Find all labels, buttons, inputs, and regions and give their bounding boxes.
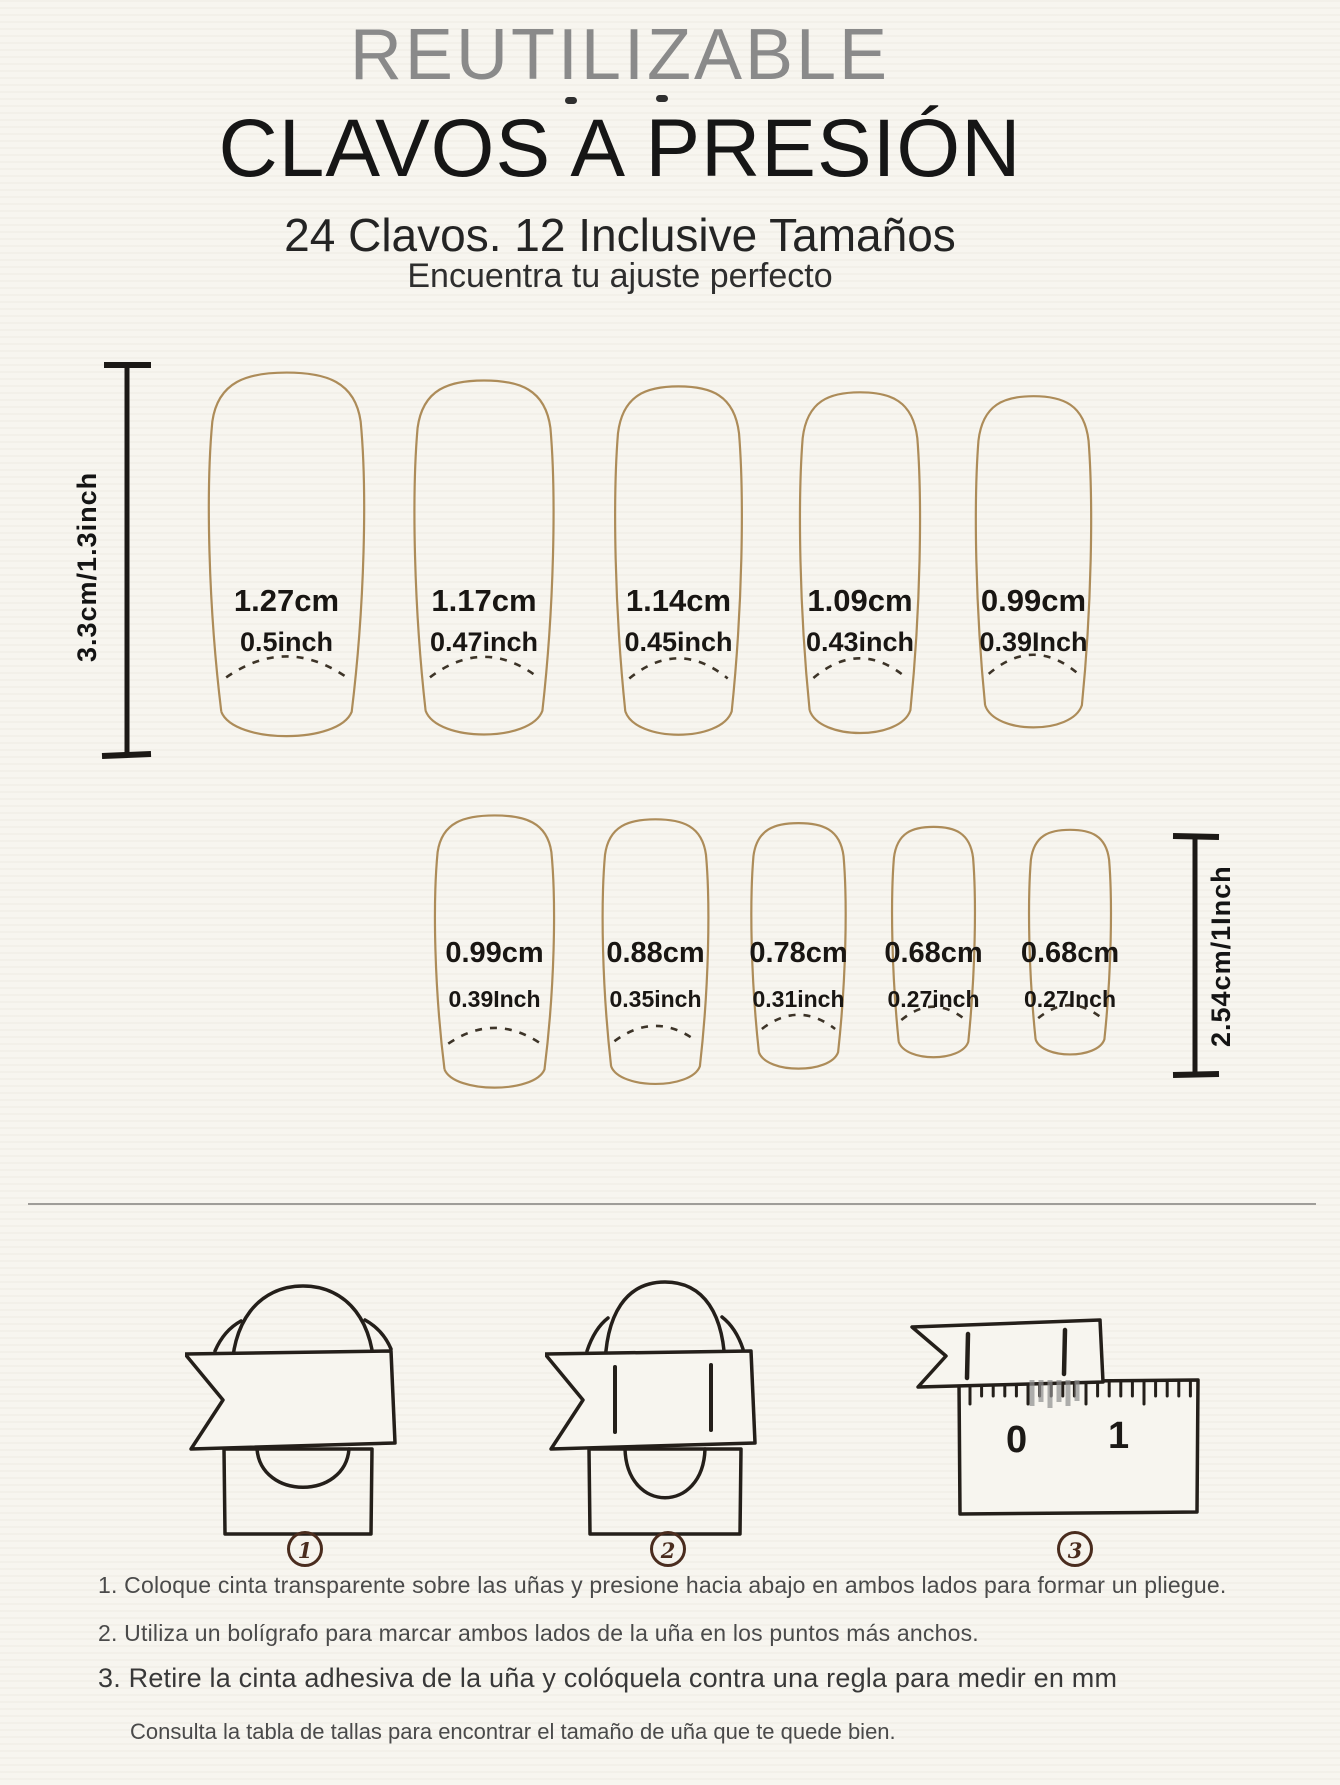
section-divider xyxy=(28,1203,1316,1205)
nail-outline xyxy=(205,368,368,750)
nail-inch-label: 0.45inch xyxy=(599,627,759,658)
ruler-zero-label: 0 xyxy=(1006,1419,1027,1461)
step1-tape-on-nail-drawing xyxy=(185,1272,425,1542)
step2-badge: 2 xyxy=(650,1531,686,1567)
step2-mark-widest-points-drawing xyxy=(545,1272,785,1542)
nail-inch-label: 0.39Inch xyxy=(954,627,1114,658)
nail-cm-label: 1.17cm xyxy=(404,583,564,619)
instruction-step-2: 2. Utiliza un bolígrafo para marcar ambo… xyxy=(98,1620,1334,1647)
nail-cm-label: 0.99cm xyxy=(954,583,1114,619)
nail-outline xyxy=(973,392,1094,740)
nail-cm-label: 1.27cm xyxy=(207,583,367,619)
nail-cm-label: 1.09cm xyxy=(780,583,940,619)
nail-inch-label: 0.43inch xyxy=(780,627,940,658)
nail-inch-label: 0.27Inch xyxy=(990,986,1150,1013)
instruction-note: Consulta la tabla de tallas para encontr… xyxy=(130,1716,920,1747)
nail-size-infographic: REUTILIZABLE CLAVOS A PRESIÓN 24 Clavos.… xyxy=(0,0,1340,1785)
nail-cm-label: 0.88cm xyxy=(576,937,736,970)
nail-outline xyxy=(612,382,745,748)
nail-outline xyxy=(411,376,557,748)
instruction-step-1: 1. Coloque cinta transparente sobre las … xyxy=(98,1572,1334,1599)
nail-cm-label: 1.14cm xyxy=(599,583,759,619)
step3-measure-on-ruler-drawing: 0 1 xyxy=(900,1272,1210,1572)
nail-inch-label: 0.5inch xyxy=(207,627,367,658)
nail-inch-label: 0.47inch xyxy=(404,627,564,658)
nail-cm-label: 0.99cm xyxy=(415,937,575,970)
nail-outline xyxy=(797,388,923,746)
step1-badge: 1 xyxy=(287,1531,323,1567)
step3-badge: 3 xyxy=(1057,1531,1093,1567)
nail-inch-label: 0.39Inch xyxy=(415,986,575,1013)
nail-cm-label: 0.68cm xyxy=(990,937,1150,970)
nail-inch-label: 0.35inch xyxy=(576,986,736,1013)
ruler-one-label: 1 xyxy=(1108,1415,1129,1457)
instruction-step-3: 3. Retire la cinta adhesiva de la uña y … xyxy=(98,1663,1334,1694)
instruction-list: 1. Coloque cinta transparente sobre las … xyxy=(98,1572,1334,1769)
